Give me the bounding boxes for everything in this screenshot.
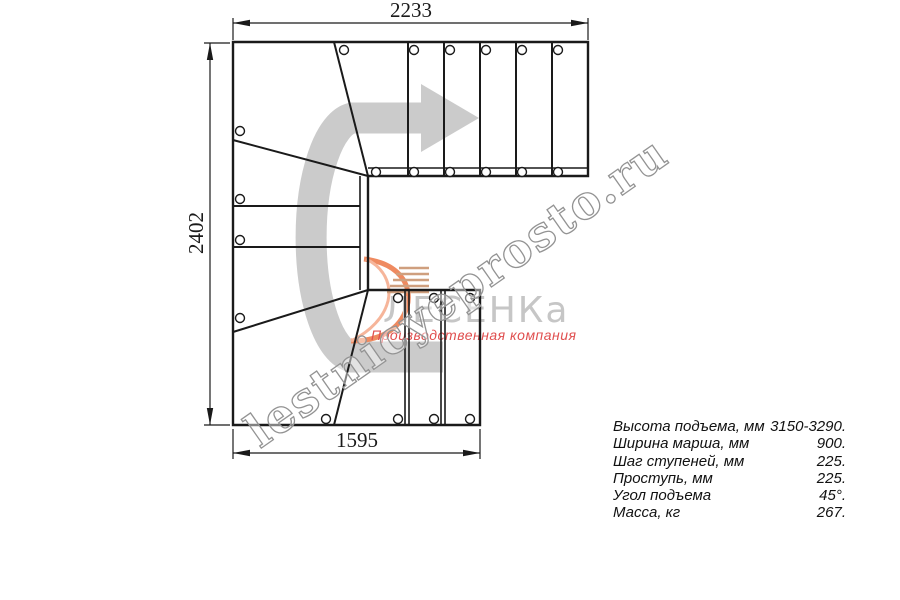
spec-label: Угол подъема (613, 487, 711, 504)
dim-arrow-icon (233, 450, 250, 456)
winder-tread-line (233, 290, 368, 332)
stair-drawing-canvas: ЛЕСЕНКа Производственная компания (0, 0, 900, 600)
screw-hole (394, 415, 403, 424)
spec-value: 3150-3290. (770, 418, 846, 435)
screw-hole (554, 168, 563, 177)
spec-value: 267. (817, 504, 846, 521)
screw-hole (554, 46, 563, 55)
dimension-left: 2402 (184, 43, 230, 425)
winder-tread-line (233, 140, 368, 176)
dim-arrow-icon (207, 43, 213, 60)
dim-arrow-icon (207, 408, 213, 425)
screw-hole (446, 168, 455, 177)
spec-value: 225. (817, 470, 846, 487)
spec-row: Шаг ступеней, мм 225. (613, 453, 846, 470)
spec-label: Ширина марша, мм (613, 435, 749, 452)
dimension-top-value: 2233 (390, 0, 432, 22)
screw-hole (482, 46, 491, 55)
screw-hole (236, 127, 245, 136)
spec-row: Высота подъема, мм 3150-3290. (613, 418, 846, 435)
dimension-left-value: 2402 (184, 212, 208, 254)
spec-table: Высота подъема, мм 3150-3290. Ширина мар… (613, 418, 846, 522)
screw-hole (236, 236, 245, 245)
spec-label: Высота подъема, мм (613, 418, 765, 435)
spec-row: Ширина марша, мм 900. (613, 435, 846, 452)
screw-hole (466, 415, 475, 424)
spec-label: Проступь, мм (613, 470, 713, 487)
dimension-bottom-value: 1595 (336, 428, 378, 452)
spec-value: 45°. (819, 487, 846, 504)
screw-hole (518, 46, 527, 55)
spec-label: Шаг ступеней, мм (613, 453, 744, 470)
spec-label: Масса, кг (613, 504, 680, 521)
dim-arrow-icon (233, 20, 250, 26)
dimension-top: 2233 (233, 0, 588, 40)
spec-value: 900. (817, 435, 846, 452)
screw-hole (518, 168, 527, 177)
screw-hole (410, 168, 419, 177)
screw-hole (340, 46, 349, 55)
spec-row: Проступь, мм 225. (613, 470, 846, 487)
page: { "drawing": { "title_hint": "stair-plan… (0, 0, 900, 600)
screw-hole (372, 168, 381, 177)
screw-hole (236, 314, 245, 323)
spec-value: 225. (817, 453, 846, 470)
spec-row: Масса, кг 267. (613, 504, 846, 521)
screw-hole (482, 168, 491, 177)
screw-hole (236, 195, 245, 204)
spec-row: Угол подъема 45°. (613, 487, 846, 504)
dim-arrow-icon (463, 450, 480, 456)
direction-arrow-head (421, 84, 479, 152)
dim-arrow-icon (571, 20, 588, 26)
screw-hole (430, 415, 439, 424)
screw-hole (410, 46, 419, 55)
screw-hole (446, 46, 455, 55)
